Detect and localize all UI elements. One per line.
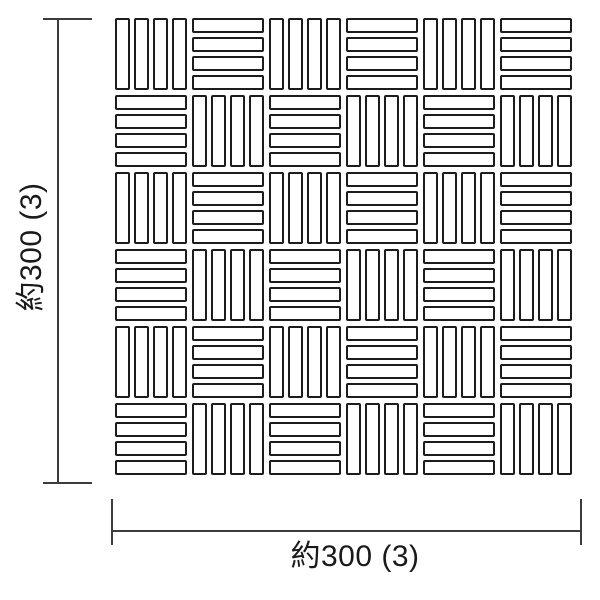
tile-bar <box>115 460 187 475</box>
tile-bar <box>192 403 207 475</box>
tile-bar <box>211 249 226 321</box>
tile-bar <box>423 268 495 283</box>
tile-block-horizontal <box>269 403 341 475</box>
tile-bar <box>500 95 515 167</box>
tile-bar <box>346 75 418 90</box>
tile-bar <box>134 18 149 90</box>
tile-bar <box>365 403 380 475</box>
tile-bar <box>500 229 572 244</box>
tile-bar <box>557 403 572 475</box>
tile-bar <box>115 306 187 321</box>
tile-bar <box>519 403 534 475</box>
tile-bar <box>192 326 264 341</box>
tile-bar <box>134 172 149 244</box>
tile-block-vertical <box>269 172 341 244</box>
tile-block-vertical <box>115 172 187 244</box>
tile-bar <box>346 364 418 379</box>
tile-bar <box>269 18 284 90</box>
tile-bar <box>249 249 264 321</box>
tile-bar <box>192 37 264 52</box>
tile-block-vertical <box>115 18 187 90</box>
tile-bar <box>346 191 418 206</box>
tile-bar <box>403 403 418 475</box>
tile-bar <box>269 152 341 167</box>
tile-bar <box>480 326 495 398</box>
tile-bar <box>480 18 495 90</box>
tile-block-horizontal <box>192 18 264 90</box>
tile-block-vertical <box>500 249 572 321</box>
tile-block-vertical <box>423 18 495 90</box>
tile-bar <box>269 287 341 302</box>
tile-bar <box>115 268 187 283</box>
tile-block-vertical <box>192 403 264 475</box>
tile-bar <box>365 249 380 321</box>
tile-bar <box>134 326 149 398</box>
tile-block-vertical <box>269 326 341 398</box>
tile-bar <box>423 95 495 110</box>
tile-bar <box>346 229 418 244</box>
tile-block-horizontal <box>192 326 264 398</box>
tile-block-horizontal <box>423 249 495 321</box>
tile-bar <box>557 95 572 167</box>
tile-bar <box>423 172 438 244</box>
tile-bar <box>384 403 399 475</box>
tile-bar <box>192 191 264 206</box>
height-dimension-line <box>57 19 59 483</box>
tile-bar <box>307 326 322 398</box>
tile-block-horizontal <box>115 249 187 321</box>
tile-bar <box>192 210 264 225</box>
tile-bar <box>500 37 572 52</box>
tile-bar <box>115 249 187 264</box>
tile-bar <box>269 249 341 264</box>
tile-bar <box>192 249 207 321</box>
tile-bar <box>346 249 361 321</box>
tile-bar <box>192 18 264 33</box>
tile-block-horizontal <box>269 249 341 321</box>
tile-bar <box>500 403 515 475</box>
tile-bar <box>500 383 572 398</box>
tile-bar <box>115 422 187 437</box>
tile-bar <box>230 249 245 321</box>
tile-block-vertical <box>192 95 264 167</box>
tile-bar <box>403 249 418 321</box>
tile-bar <box>423 287 495 302</box>
tile-bar <box>115 114 187 129</box>
tile-block-horizontal <box>500 172 572 244</box>
tile-bar <box>153 172 168 244</box>
tile-block-horizontal <box>500 18 572 90</box>
tile-bar <box>211 95 226 167</box>
tile-bar <box>115 152 187 167</box>
tile-bar <box>172 18 187 90</box>
tile-bar <box>115 18 130 90</box>
tile-bar <box>172 172 187 244</box>
tile-bar <box>115 326 130 398</box>
width-dimension-line <box>112 530 582 532</box>
tile-block-horizontal <box>423 95 495 167</box>
tile-bar <box>403 95 418 167</box>
tile-bar <box>500 75 572 90</box>
tile-bar <box>500 56 572 71</box>
tile-bar <box>192 95 207 167</box>
tile-bar <box>326 172 341 244</box>
tile-bar <box>423 18 438 90</box>
tile-bar <box>269 172 284 244</box>
tile-bar <box>519 249 534 321</box>
tile-block-vertical <box>423 326 495 398</box>
tile-block-horizontal <box>192 172 264 244</box>
tile-bar <box>557 249 572 321</box>
tile-bar <box>500 345 572 360</box>
tile-bar <box>365 95 380 167</box>
tile-block-vertical <box>346 249 418 321</box>
tile-bar <box>269 133 341 148</box>
tile-bar <box>288 172 303 244</box>
tile-bar <box>442 172 457 244</box>
tile-bar <box>423 306 495 321</box>
tile-bar <box>230 403 245 475</box>
tile-bar <box>326 326 341 398</box>
tile-bar <box>346 326 418 341</box>
tile-bar <box>288 326 303 398</box>
tile-block-horizontal <box>423 403 495 475</box>
tile-bar <box>230 95 245 167</box>
tile-bar <box>211 403 226 475</box>
tile-bar <box>269 441 341 456</box>
tile-block-vertical <box>115 326 187 398</box>
tile-block-horizontal <box>115 403 187 475</box>
tile-bar <box>423 326 438 398</box>
tile-bar <box>384 95 399 167</box>
tile-bar <box>538 249 553 321</box>
tile-bar <box>500 191 572 206</box>
tile-bar <box>480 172 495 244</box>
tile-block-vertical <box>346 95 418 167</box>
tile-bar <box>192 75 264 90</box>
tile-bar <box>269 460 341 475</box>
tile-bar <box>307 172 322 244</box>
tile-bar <box>249 403 264 475</box>
tile-block-vertical <box>500 403 572 475</box>
height-dimension-tick-top <box>43 18 92 20</box>
tile-bar <box>192 364 264 379</box>
tile-bar <box>269 422 341 437</box>
tile-block-horizontal <box>346 326 418 398</box>
tile-bar <box>500 326 572 341</box>
tile-bar <box>172 326 187 398</box>
tile-bar <box>192 56 264 71</box>
tile-bar <box>269 326 284 398</box>
tile-bar <box>192 172 264 187</box>
tile-bar <box>115 403 187 418</box>
tile-bar <box>346 172 418 187</box>
tile-bar <box>519 95 534 167</box>
tile-bar <box>346 210 418 225</box>
tile-bar <box>500 18 572 33</box>
tile-bar <box>346 383 418 398</box>
width-dimension-tick-right <box>580 499 582 545</box>
tile-bar <box>153 18 168 90</box>
tile-bar <box>423 114 495 129</box>
tile-bar <box>423 249 495 264</box>
tile-bar <box>423 460 495 475</box>
tile-block-vertical <box>346 403 418 475</box>
tile-bar <box>346 403 361 475</box>
tile-bar <box>461 18 476 90</box>
tile-bar <box>423 152 495 167</box>
tile-bar <box>326 18 341 90</box>
tile-bar <box>538 403 553 475</box>
tile-bar <box>115 287 187 302</box>
tile-sheet-diagram: 約300 (3) 約300 (3) <box>0 0 600 600</box>
tile-block-horizontal <box>346 18 418 90</box>
tile-bar <box>500 172 572 187</box>
tile-bar <box>192 383 264 398</box>
width-dimension-tick-left <box>111 499 113 545</box>
tile-bar <box>115 133 187 148</box>
width-dimension-label: 約300 (3) <box>230 539 480 575</box>
tile-bar <box>192 345 264 360</box>
tile-bar <box>346 95 361 167</box>
tile-bar <box>115 95 187 110</box>
tile-block-horizontal <box>500 326 572 398</box>
tile-bar <box>538 95 553 167</box>
tile-bar <box>500 364 572 379</box>
tile-block-vertical <box>423 172 495 244</box>
tile-block-horizontal <box>346 172 418 244</box>
tile-bar <box>346 56 418 71</box>
tile-block-horizontal <box>269 95 341 167</box>
tile-block-horizontal <box>115 95 187 167</box>
tile-bar <box>423 133 495 148</box>
tile-bar <box>442 326 457 398</box>
tile-bar <box>500 210 572 225</box>
tile-bar <box>288 18 303 90</box>
tile-bar <box>423 422 495 437</box>
tile-pattern <box>115 18 572 475</box>
tile-bar <box>249 95 264 167</box>
tile-block-vertical <box>500 95 572 167</box>
tile-bar <box>346 18 418 33</box>
tile-bar <box>461 326 476 398</box>
tile-bar <box>423 441 495 456</box>
tile-bar <box>153 326 168 398</box>
tile-bar <box>500 249 515 321</box>
tile-bar <box>423 403 495 418</box>
tile-bar <box>269 95 341 110</box>
tile-bar <box>384 249 399 321</box>
height-dimension-tick-bottom <box>43 482 92 484</box>
tile-bar <box>269 114 341 129</box>
tile-bar <box>192 229 264 244</box>
tile-bar <box>346 345 418 360</box>
tile-block-vertical <box>192 249 264 321</box>
tile-bar <box>461 172 476 244</box>
tile-bar <box>269 306 341 321</box>
height-dimension-label: 約300 (3) <box>14 122 50 372</box>
tile-bar <box>269 268 341 283</box>
tile-bar <box>115 441 187 456</box>
tile-bar <box>269 403 341 418</box>
tile-bar <box>115 172 130 244</box>
tile-block-vertical <box>269 18 341 90</box>
tile-bar <box>442 18 457 90</box>
tile-bar <box>346 37 418 52</box>
tile-bar <box>307 18 322 90</box>
